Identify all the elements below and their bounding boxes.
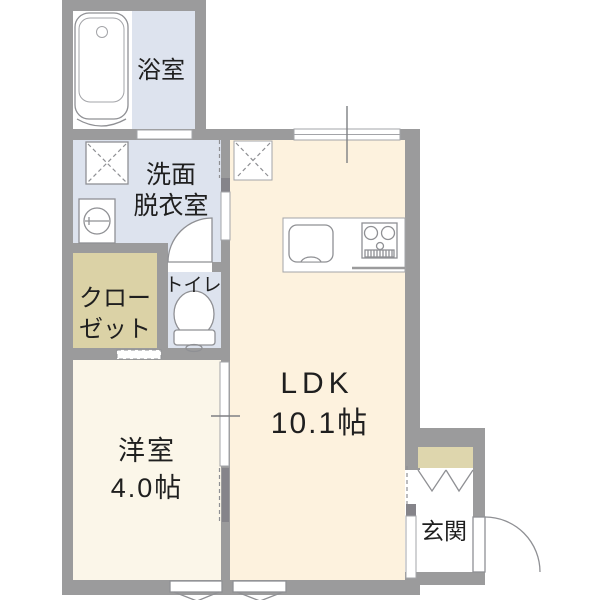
- washer-pan-frame: [86, 142, 128, 184]
- wall-outer-top: [62, 0, 206, 11]
- ldk-area-label: 10.1帖: [271, 407, 369, 440]
- toilet-tank: [174, 330, 215, 345]
- shoe-cabinet: [418, 447, 473, 468]
- washroom-slide-panel: [221, 178, 230, 192]
- wall-entrance-bottom: [405, 572, 485, 585]
- ldk-label: LDK: [280, 367, 353, 400]
- bathroom-door: [137, 130, 192, 139]
- toilet-bowl-icon: [174, 291, 215, 352]
- bedroom-slide-panel: [222, 468, 229, 522]
- entrance-sliding-door: [406, 516, 416, 578]
- washroom-sliding-door: [221, 192, 230, 240]
- stove-grill-hatch: [368, 250, 392, 257]
- vent-bedroom-icon: [170, 581, 222, 592]
- entrance-slide-panel: [406, 504, 416, 516]
- wall-outer-left: [62, 0, 73, 595]
- vent-ldk-icon: [233, 581, 286, 592]
- bathtub-drain-icon: [97, 27, 108, 38]
- bathtub-icon: [75, 13, 128, 126]
- floor-plan-canvas: 浴室 洗面 脱衣室 クロー ゼット トイレ LDK 10.1帖 洋室 4.0帖 …: [0, 0, 600, 600]
- western-room-floor: [73, 360, 221, 580]
- washroom-label-1: 洗面: [146, 161, 196, 189]
- bedroom-sliding-door: [220, 362, 229, 466]
- refrigerator-space-icon: [234, 141, 272, 180]
- wall-washroom-closet: [62, 243, 158, 253]
- floor-plan: 浴室 洗面 脱衣室 クロー ゼット トイレ LDK 10.1帖 洋室 4.0帖 …: [0, 0, 600, 600]
- toilet-label: トイレ: [164, 275, 221, 296]
- wall-ldk-right: [405, 129, 420, 470]
- wall-closet-toilet: [157, 243, 168, 360]
- western-room-label: 洋室: [118, 436, 176, 466]
- closet-label-2: ゼット: [79, 316, 151, 343]
- bathroom-label: 浴室: [137, 57, 185, 84]
- washing-machine-pan-icon: [86, 142, 128, 184]
- washbasin-icon: [79, 199, 115, 243]
- washroom-label-2: 脱衣室: [133, 192, 208, 220]
- wall-bathroom-right: [195, 0, 206, 140]
- closet-opening: [117, 350, 161, 359]
- entrance-door-leaf: [473, 517, 485, 572]
- closet-label-1: クロー: [79, 285, 151, 312]
- kitchen-counter: [283, 218, 405, 272]
- wall-entrance-right: [473, 428, 485, 517]
- entrance-label: 玄関: [421, 518, 467, 544]
- toilet-door-opening: [168, 262, 212, 272]
- western-room-area: 4.0帖: [111, 473, 184, 503]
- ldk-floor: [230, 140, 405, 580]
